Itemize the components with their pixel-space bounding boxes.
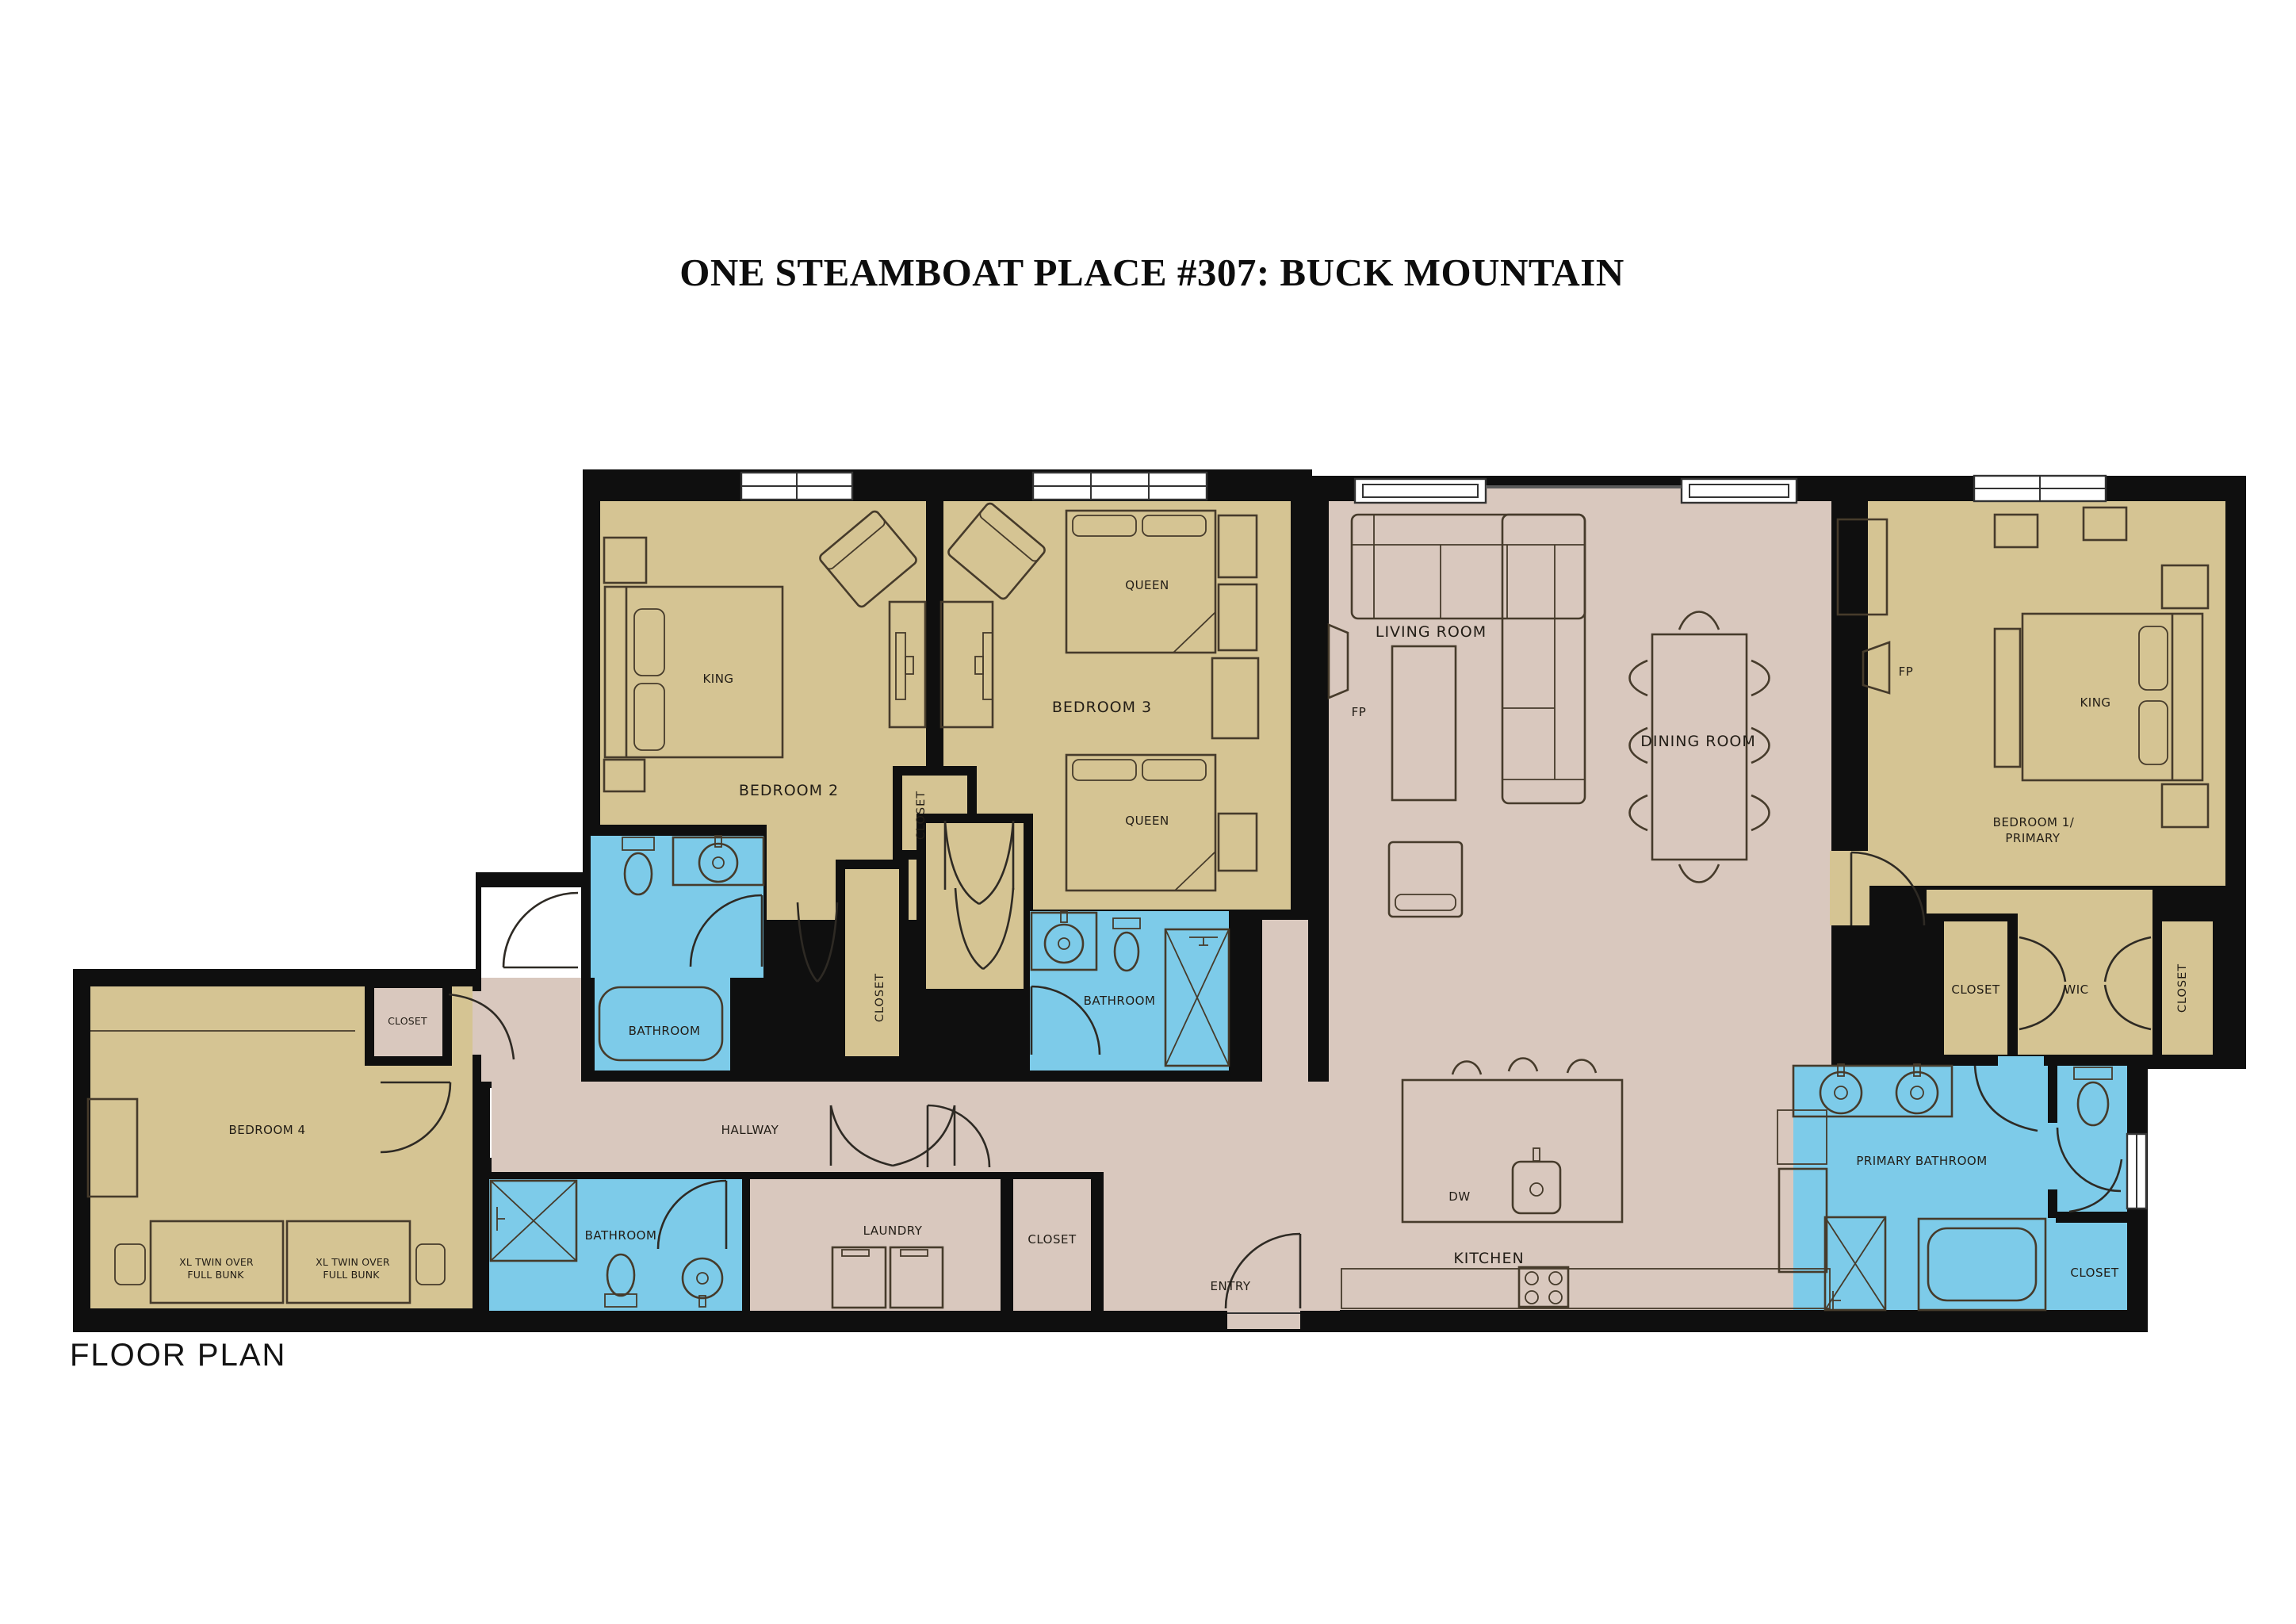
label-primary-bathroom: PRIMARY BATHROOM — [1856, 1154, 1987, 1168]
closet-corridor — [1927, 890, 2152, 913]
window-bedroom3-icon — [1033, 473, 1207, 500]
hall-branch — [1262, 920, 1308, 1091]
label-bathroom4: BATHROOM — [585, 1228, 657, 1243]
label-queen-bottom: QUEEN — [1125, 814, 1169, 828]
room-bathroom3 — [1030, 911, 1229, 1071]
label-bathroom2: BATHROOM — [629, 1024, 701, 1038]
window-primary-bath-icon — [2127, 1134, 2146, 1208]
primary-bath-door-gap — [1998, 1056, 2044, 1067]
label-king-bedroom2: KING — [702, 672, 733, 686]
label-closet-laundry: CLOSET — [1027, 1232, 1077, 1247]
page-title: ONE STEAMBOAT PLACE #307: BUCK MOUNTAIN — [679, 251, 1624, 294]
label-bedroom4: BEDROOM 4 — [228, 1123, 305, 1137]
label-king-bedroom1: KING — [2080, 695, 2110, 710]
label-closet-a-vertical: CLOSET — [915, 791, 928, 840]
room-closet-b — [840, 864, 904, 1061]
label-living-room: LIVING ROOM — [1376, 623, 1487, 641]
label-closet-primary: CLOSET — [2070, 1266, 2119, 1280]
label-closet-bed4: CLOSET — [388, 1015, 427, 1027]
window-bedroom2-icon — [741, 473, 852, 500]
caption-floor-plan: FLOOR PLAN — [70, 1338, 286, 1373]
label-closet-left: CLOSET — [1951, 982, 2000, 997]
label-fp-living: FP — [1352, 705, 1367, 719]
label-bedroom2: BEDROOM 2 — [739, 782, 839, 799]
label-bedroom1-line1: BEDROOM 1/ — [1993, 815, 2075, 829]
label-kitchen: KITCHEN — [1453, 1250, 1524, 1267]
entry-vestibule — [481, 887, 581, 978]
label-queen-top: QUEEN — [1125, 578, 1169, 592]
floor-plan-canvas: ONE STEAMBOAT PLACE #307: BUCK MOUNTAIN … — [0, 0, 2296, 1624]
label-closet-right-vertical: CLOSET — [2176, 963, 2189, 1013]
window-living-icon — [1355, 479, 1486, 503]
room-bathroom2 — [591, 836, 763, 978]
label-bathroom3: BATHROOM — [1084, 994, 1156, 1008]
window-bedroom1-icon — [1974, 476, 2106, 501]
label-closet-b-vertical: CLOSET — [874, 973, 886, 1022]
window-dining-icon — [1682, 479, 1797, 503]
label-bedroom1-line2: PRIMARY — [2005, 831, 2061, 845]
label-bedroom3: BEDROOM 3 — [1052, 699, 1152, 716]
label-wic: WIC — [2064, 982, 2088, 997]
label-hallway: HALLWAY — [721, 1123, 779, 1137]
bedroom1-door-opening — [1830, 851, 1869, 925]
room-laundry — [750, 1179, 1001, 1311]
label-entry: ENTRY — [1211, 1279, 1251, 1293]
label-bunk1-line1: XL TWIN OVER — [179, 1256, 254, 1268]
label-bunk2-line1: XL TWIN OVER — [316, 1256, 390, 1268]
floor-plan-page: ONE STEAMBOAT PLACE #307: BUCK MOUNTAIN … — [0, 0, 2296, 1624]
label-laundry: LAUNDRY — [863, 1224, 923, 1238]
edge-trim-2 — [2246, 469, 2296, 1624]
label-dining-room: DINING ROOM — [1640, 733, 1756, 750]
label-fp-bedroom1: FP — [1899, 665, 1914, 679]
label-bunk2-line2: FULL BUNK — [323, 1269, 380, 1281]
label-dw: DW — [1448, 1189, 1470, 1204]
room-bathroom4 — [489, 1179, 742, 1311]
room-living-dining-kitchen — [1329, 501, 1831, 1310]
vestibule-hall — [481, 978, 581, 1082]
label-bunk1-line2: FULL BUNK — [187, 1269, 244, 1281]
